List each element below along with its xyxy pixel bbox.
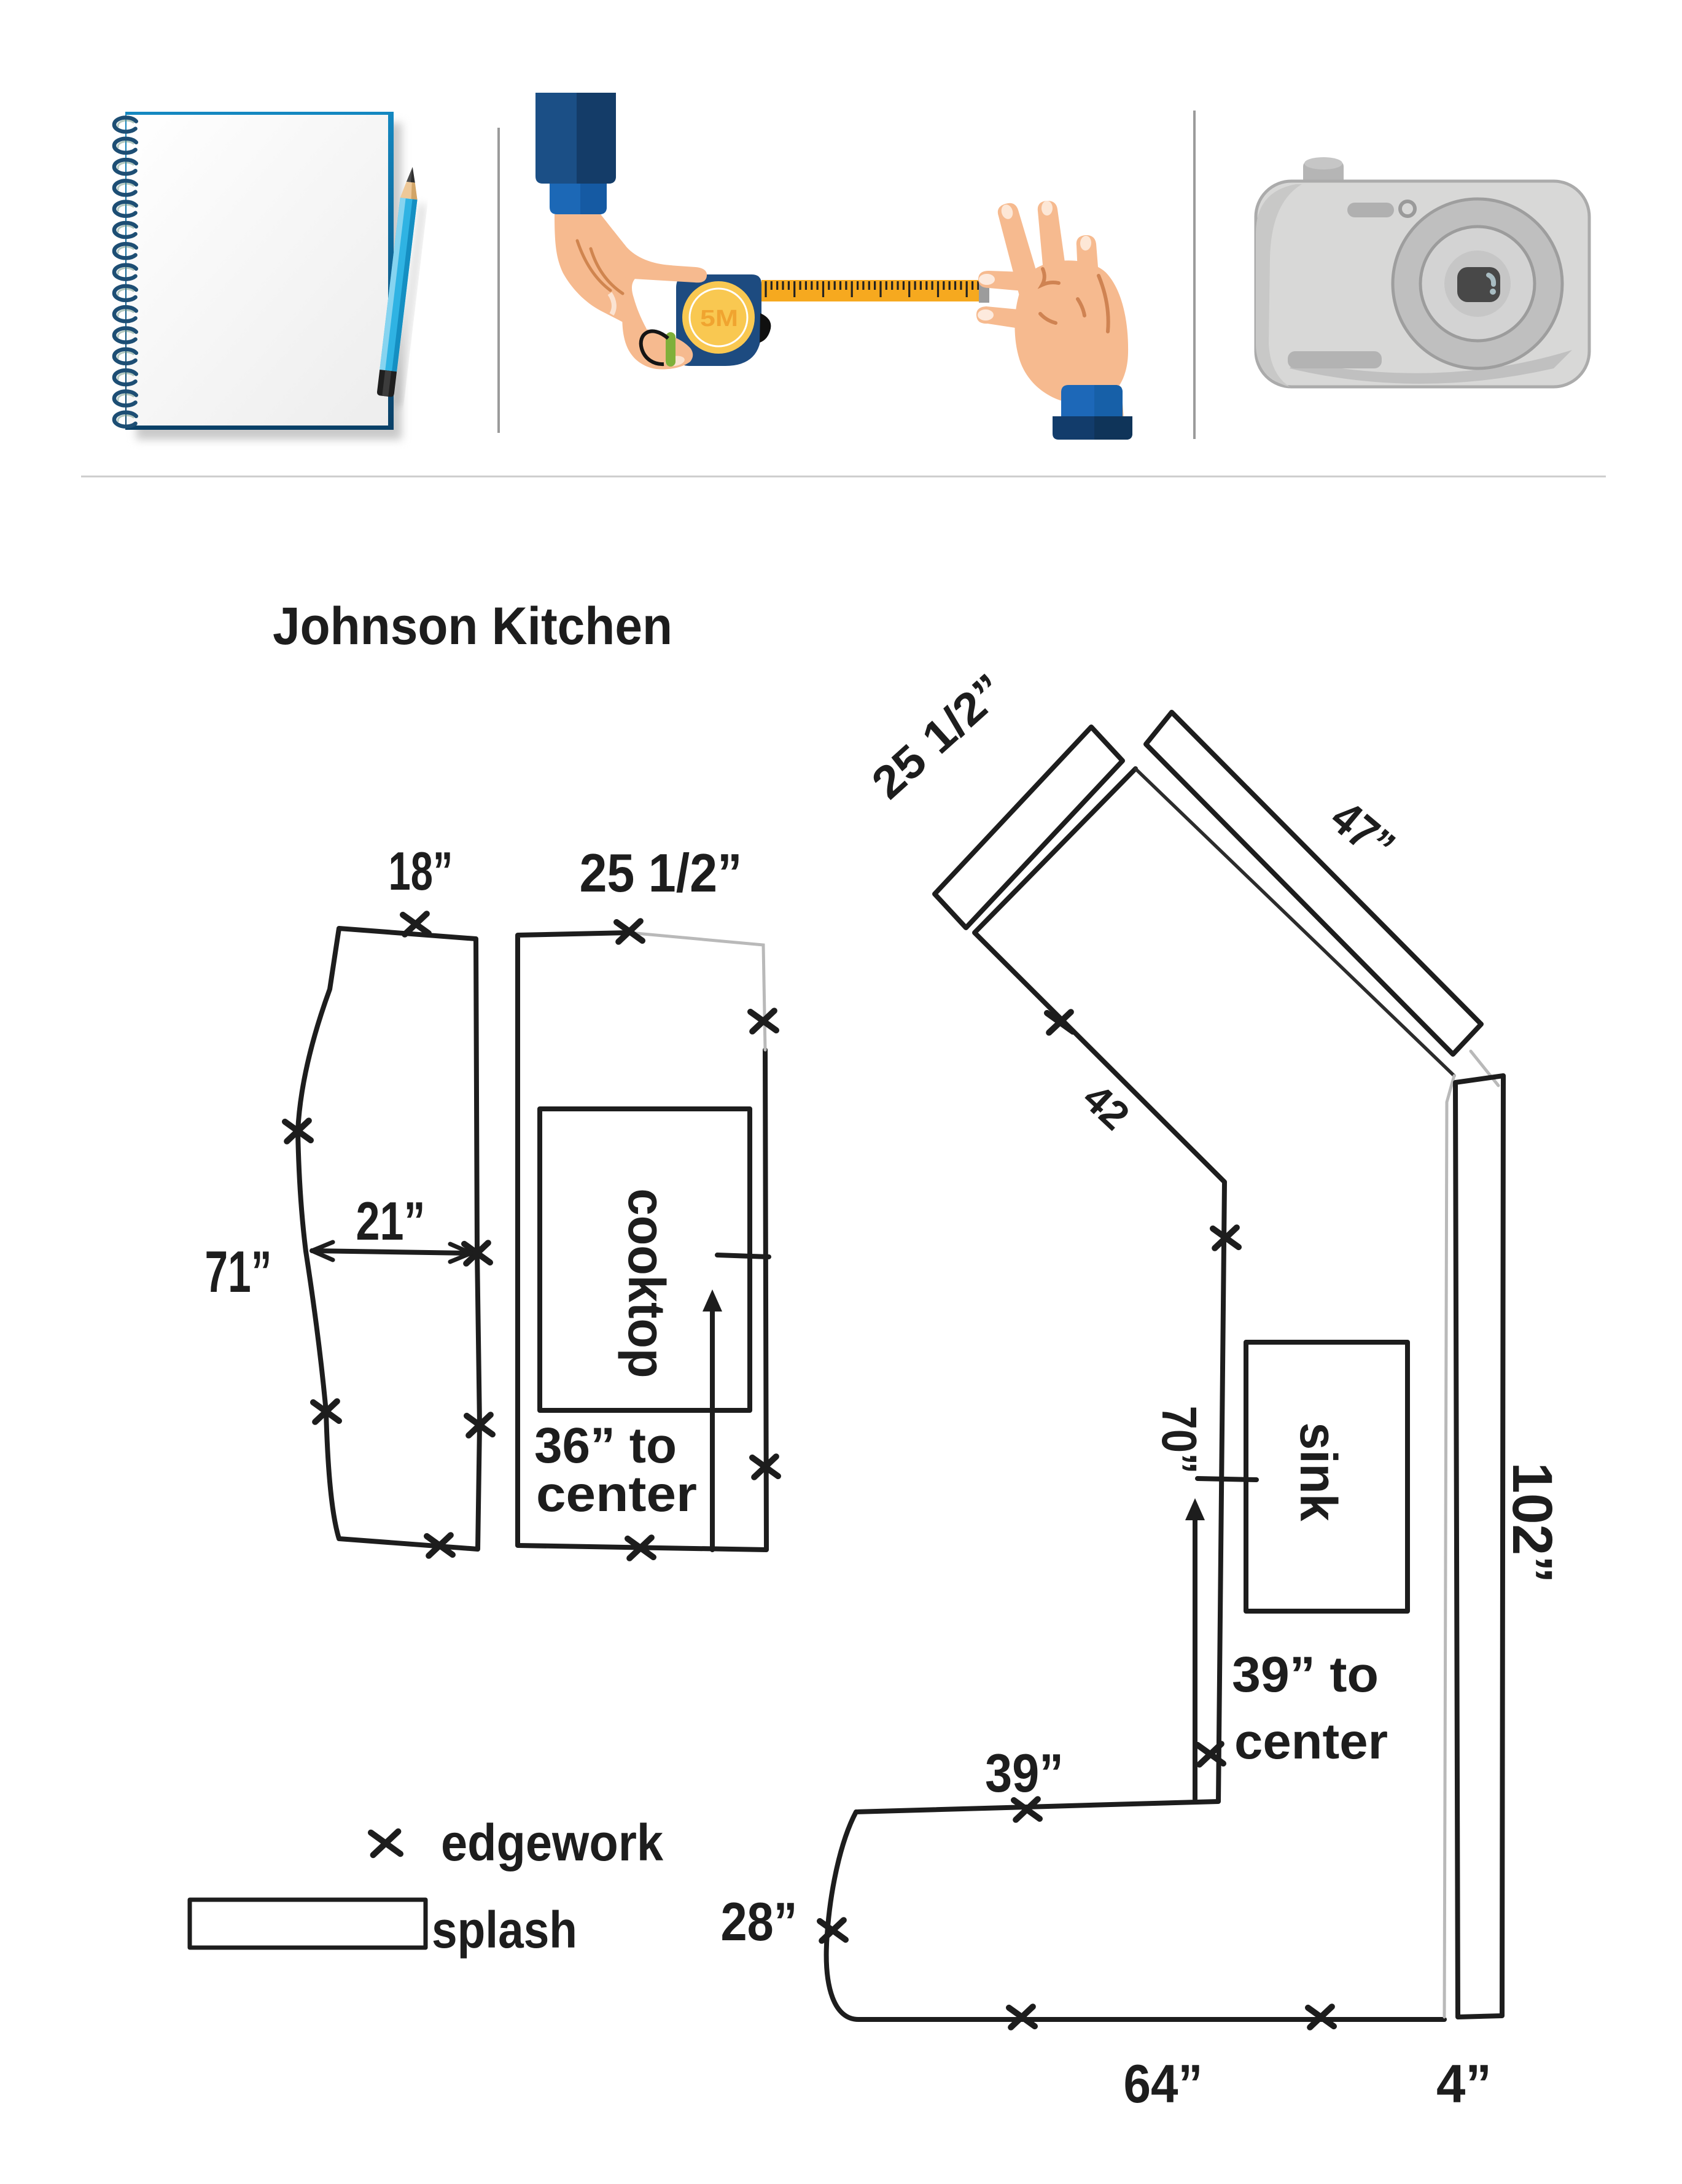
svg-text:21”: 21” [356, 1191, 426, 1251]
svg-text:18”: 18” [389, 841, 453, 901]
svg-text:64”: 64” [1124, 2053, 1203, 2114]
svg-text:center: center [536, 1466, 697, 1522]
svg-text:cooktop: cooktop [618, 1189, 676, 1378]
svg-text:71”: 71” [205, 1239, 272, 1305]
svg-text:Johnson Kitchen: Johnson Kitchen [273, 597, 672, 656]
svg-text:70”: 70” [1152, 1406, 1207, 1474]
svg-text:5M: 5M [700, 306, 738, 332]
svg-text:39”: 39” [985, 1743, 1064, 1803]
svg-text:splash: splash [432, 1901, 577, 1959]
svg-text:4”: 4” [1436, 2053, 1492, 2114]
svg-text:sink: sink [1290, 1423, 1347, 1521]
svg-text:102”: 102” [1501, 1463, 1563, 1584]
svg-text:25 1/2”: 25 1/2” [580, 842, 742, 903]
svg-text:36” to: 36” to [534, 1418, 677, 1474]
svg-text:39” to: 39” to [1232, 1647, 1379, 1703]
svg-text:edgework: edgework [441, 1814, 663, 1871]
svg-text:28”: 28” [721, 1891, 798, 1952]
svg-text:center: center [1234, 1714, 1388, 1770]
